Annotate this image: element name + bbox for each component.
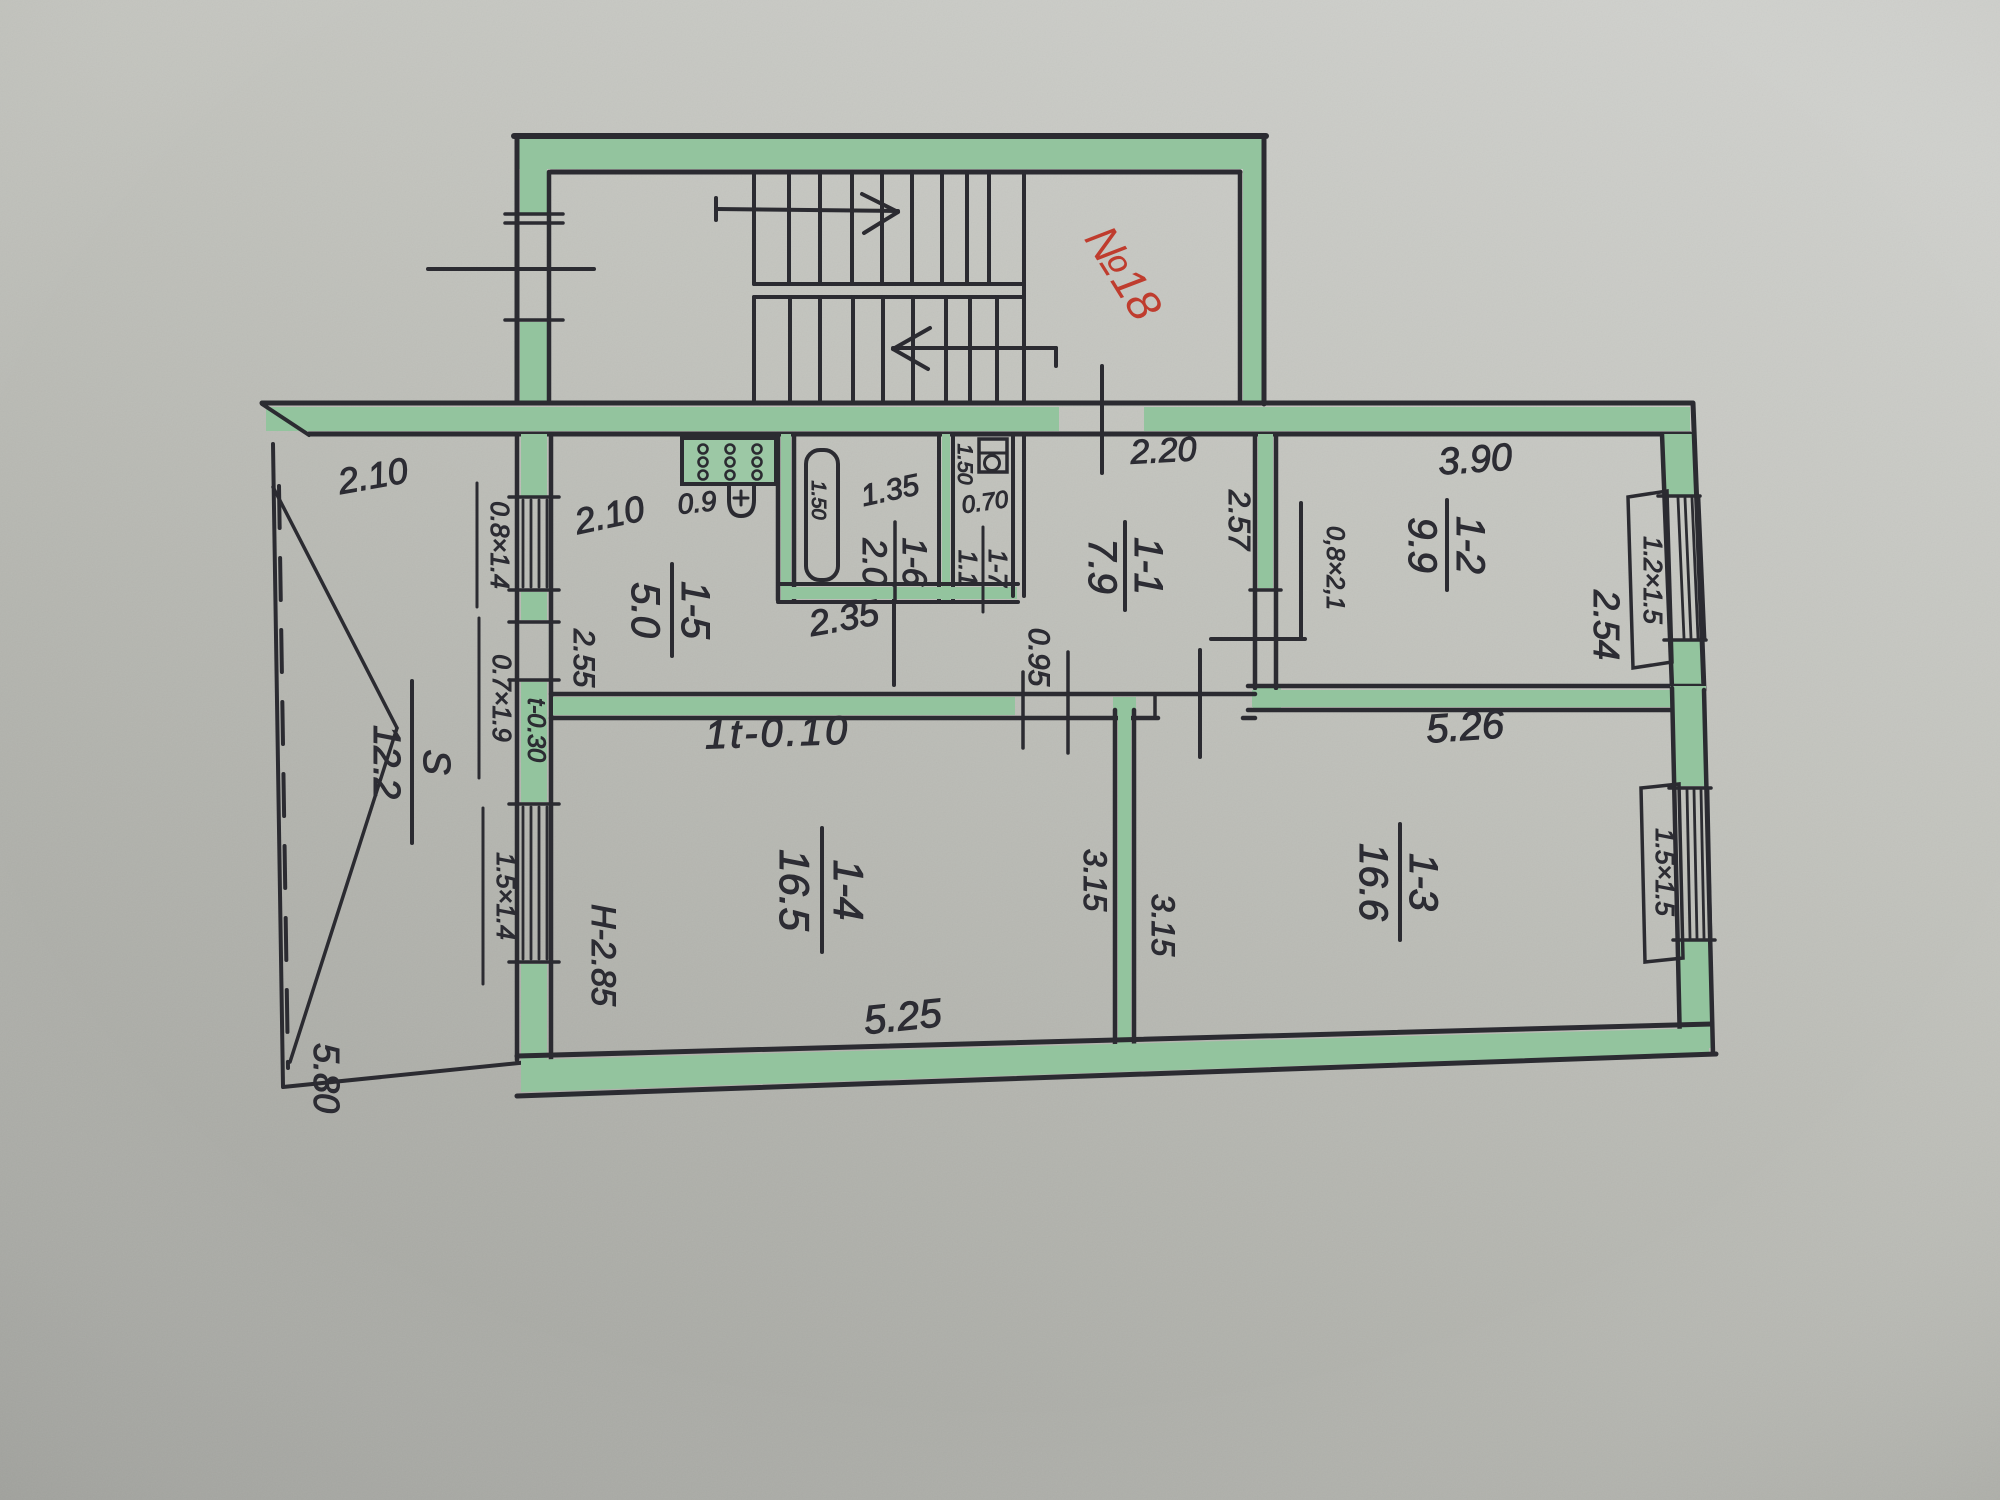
svg-text:1.50: 1.50 [953,444,976,485]
svg-text:5.26: 5.26 [1425,702,1506,751]
svg-text:2.0: 2.0 [855,537,893,585]
svg-text:1.5×1.4: 1.5×1.4 [491,852,521,939]
svg-text:1-6: 1-6 [895,537,933,586]
svg-text:5.25: 5.25 [862,991,945,1043]
svg-text:H-2.85: H-2.85 [584,904,622,1006]
svg-text:3.15: 3.15 [1145,894,1181,956]
svg-text:1-4: 1-4 [825,860,872,921]
svg-text:5.0: 5.0 [623,582,667,638]
svg-text:1-7: 1-7 [983,549,1013,588]
svg-text:5.80: 5.80 [306,1043,347,1113]
svg-text:0,8×2,1: 0,8×2,1 [1321,526,1349,610]
svg-text:0.9: 0.9 [676,485,718,520]
svg-text:3.15: 3.15 [1077,849,1113,911]
svg-text:2.54: 2.54 [1586,589,1627,660]
svg-text:0.8×1.4: 0.8×1.4 [485,501,515,588]
svg-text:2.20: 2.20 [1128,430,1197,471]
svg-text:1.2×1.5: 1.2×1.5 [1638,536,1668,624]
svg-text:0.7×1.9: 0.7×1.9 [487,654,517,741]
svg-text:t-0.30: t-0.30 [522,698,550,762]
svg-text:1-1: 1-1 [1126,537,1170,595]
svg-text:1.5×1.5: 1.5×1.5 [1650,828,1680,916]
svg-text:12.2: 12.2 [365,725,407,799]
svg-text:1-2: 1-2 [1448,516,1492,574]
svg-text:1.50: 1.50 [807,481,829,520]
svg-text:1.1: 1.1 [953,550,983,586]
svg-text:2.55: 2.55 [567,628,600,688]
svg-text:2.57: 2.57 [1222,489,1257,552]
svg-text:S: S [415,749,457,774]
svg-text:7.9: 7.9 [1080,538,1124,594]
svg-text:3.90: 3.90 [1437,437,1514,484]
svg-text:16.6: 16.6 [1351,843,1395,922]
svg-text:16.5: 16.5 [771,849,818,931]
svg-text:9.9: 9.9 [1400,517,1444,573]
svg-text:1-5: 1-5 [673,581,717,640]
svg-text:1-3: 1-3 [1401,853,1445,911]
svg-text:0.95: 0.95 [1022,628,1055,687]
svg-text:1t-0.10: 1t-0.10 [704,708,851,757]
